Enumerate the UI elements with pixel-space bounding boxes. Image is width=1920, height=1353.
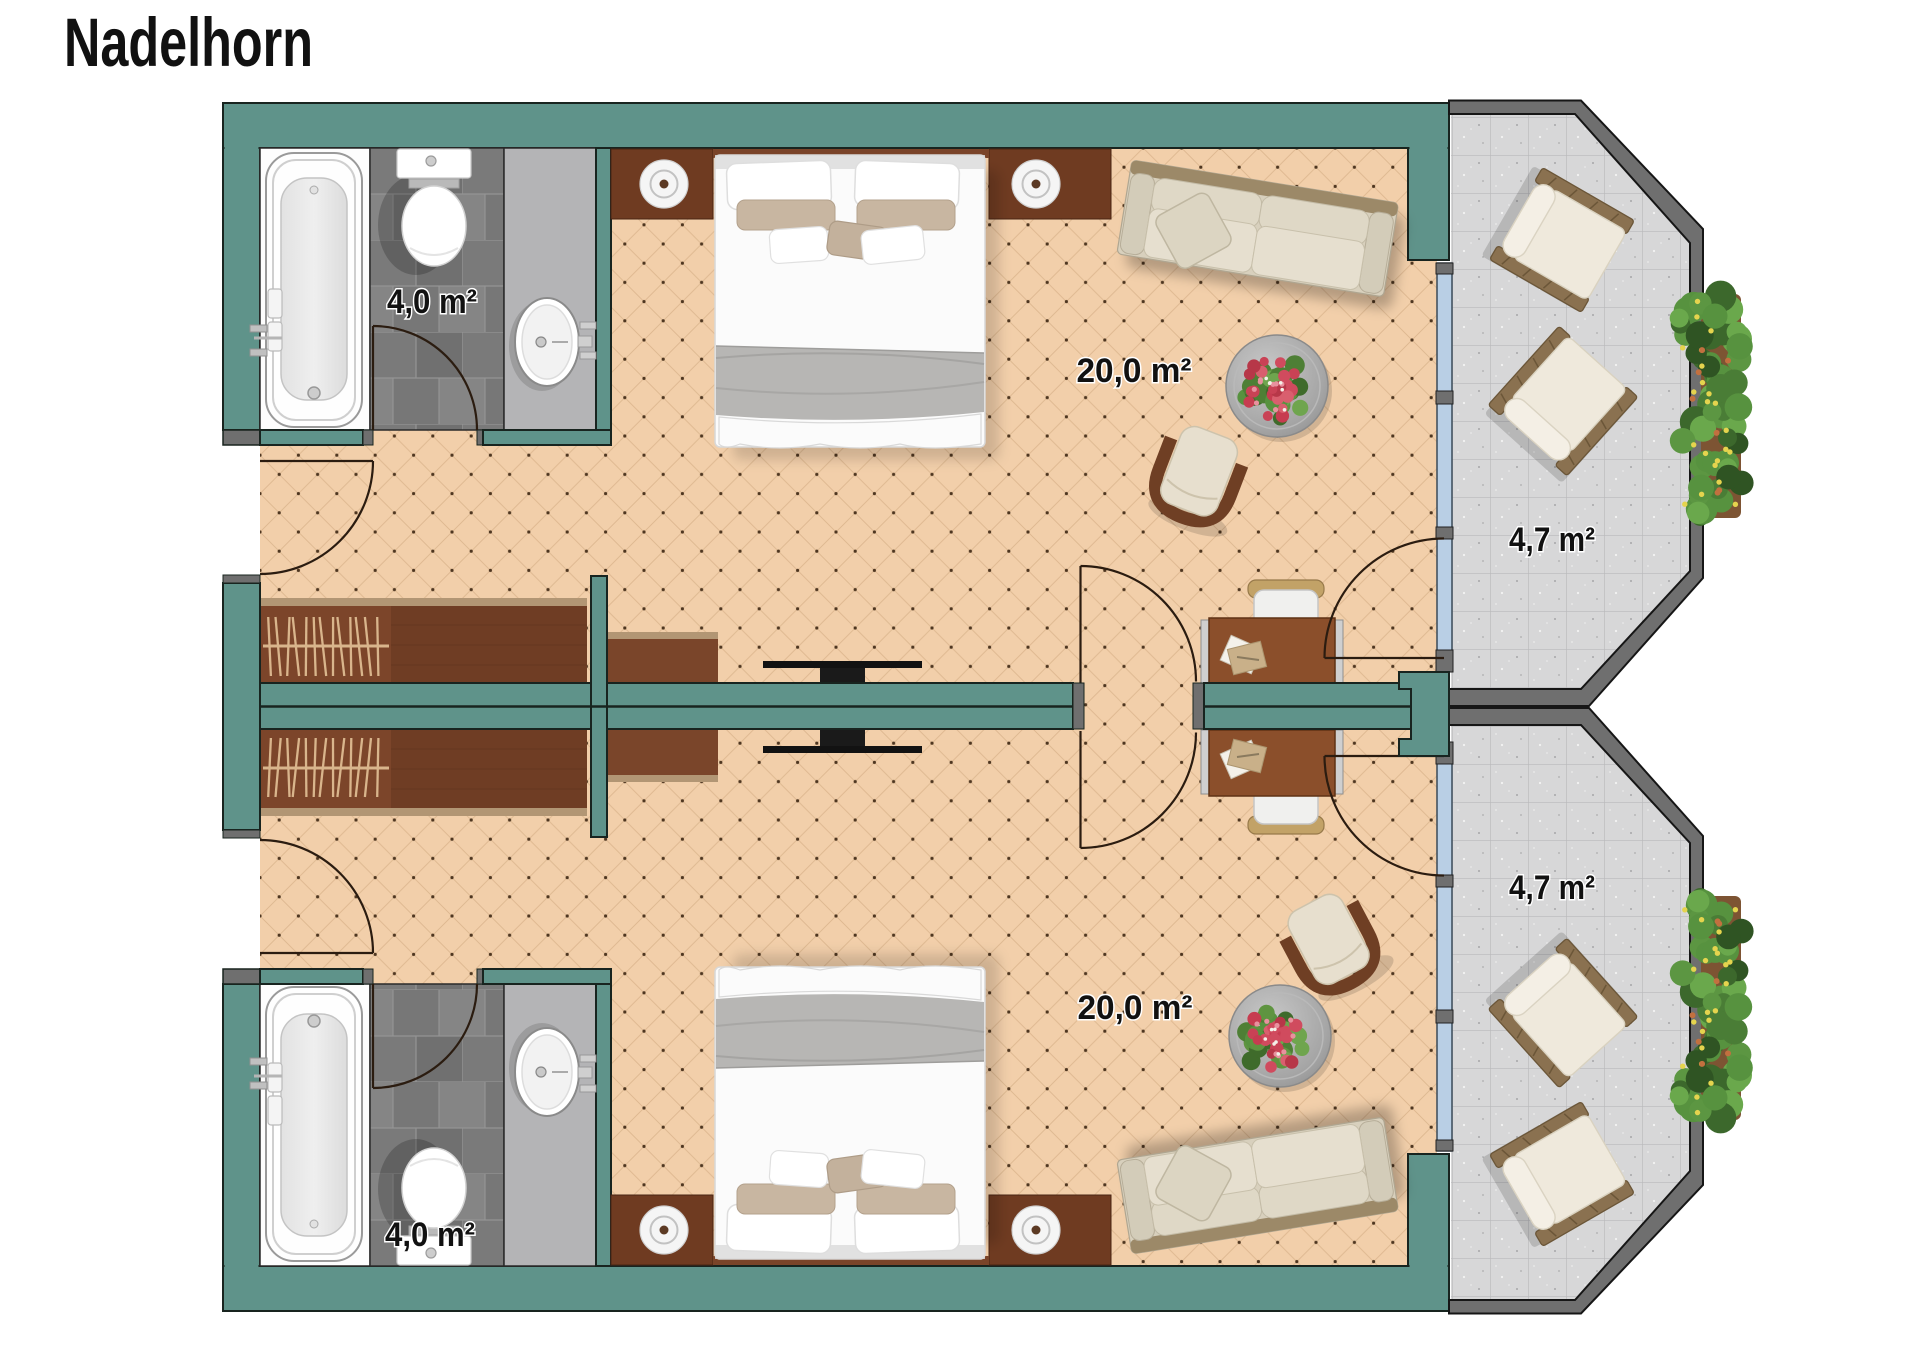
svg-text:20,0 m²: 20,0 m²	[1078, 989, 1193, 1027]
svg-text:4,0 m²: 4,0 m²	[387, 283, 477, 321]
svg-text:4,0 m²: 4,0 m²	[385, 1216, 475, 1254]
svg-text:Nadelhorn: Nadelhorn	[64, 4, 313, 81]
svg-text:4,7 m²: 4,7 m²	[1509, 521, 1595, 559]
svg-text:20,0 m²: 20,0 m²	[1077, 352, 1192, 390]
svg-text:4,7 m²: 4,7 m²	[1509, 869, 1595, 907]
